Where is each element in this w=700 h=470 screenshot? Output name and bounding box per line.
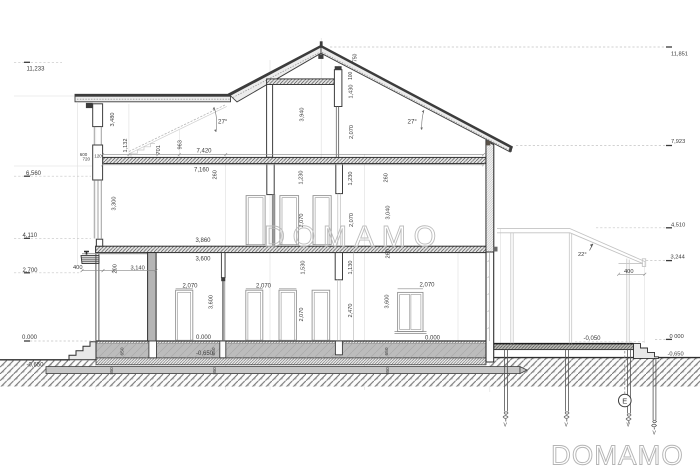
- svg-text:27°: 27°: [218, 119, 228, 126]
- svg-text:750: 750: [353, 53, 359, 62]
- svg-text:2,470: 2,470: [348, 304, 354, 318]
- svg-text:-0,650: -0,650: [668, 352, 684, 358]
- svg-text:200: 200: [113, 264, 119, 273]
- svg-text:3,244: 3,244: [671, 255, 685, 261]
- svg-text:650: 650: [384, 347, 390, 355]
- svg-text:850: 850: [212, 367, 217, 375]
- svg-text:850: 850: [109, 367, 114, 375]
- svg-text:7,420: 7,420: [197, 149, 213, 155]
- svg-text:3,300: 3,300: [112, 197, 118, 211]
- svg-text:3,940: 3,940: [299, 108, 305, 122]
- svg-text:3,860: 3,860: [196, 238, 212, 244]
- svg-text:1,230: 1,230: [348, 172, 354, 186]
- svg-text:701: 701: [156, 145, 162, 154]
- svg-text:11,233: 11,233: [27, 67, 46, 73]
- svg-text:1,530: 1,530: [300, 261, 306, 275]
- svg-text:260: 260: [213, 170, 219, 179]
- svg-text:3,040: 3,040: [386, 206, 392, 220]
- svg-text:650: 650: [120, 347, 126, 355]
- svg-text:4,110: 4,110: [23, 233, 38, 239]
- svg-text:1,230: 1,230: [299, 171, 305, 185]
- svg-text:27°: 27°: [408, 119, 418, 126]
- svg-text:400: 400: [73, 265, 83, 271]
- svg-text:-0,650: -0,650: [27, 363, 45, 369]
- svg-text:11,851: 11,851: [671, 51, 688, 57]
- svg-text:650: 650: [211, 347, 217, 355]
- svg-text:-0,050: -0,050: [584, 336, 602, 342]
- svg-text:1,430: 1,430: [349, 85, 355, 99]
- svg-text:0 000: 0 000: [670, 334, 684, 340]
- svg-text:850: 850: [385, 367, 390, 375]
- svg-text:400: 400: [624, 269, 634, 275]
- svg-text:2,070: 2,070: [420, 283, 436, 289]
- svg-text:720: 720: [83, 156, 91, 161]
- svg-text:3,140: 3,140: [131, 265, 145, 271]
- svg-text:2,700: 2,700: [23, 268, 39, 274]
- svg-text:6,560: 6,560: [26, 171, 42, 177]
- svg-text:0.000: 0.000: [425, 336, 441, 342]
- svg-text:0.000: 0.000: [22, 335, 38, 341]
- svg-text:260: 260: [384, 173, 390, 182]
- svg-text:3,600: 3,600: [196, 256, 212, 262]
- svg-text:4,510: 4,510: [671, 222, 685, 228]
- svg-text:100: 100: [348, 71, 354, 80]
- svg-text:120: 120: [94, 154, 102, 159]
- svg-text:DOMAMO: DOMAMO: [551, 440, 684, 470]
- svg-text:3,480: 3,480: [110, 113, 116, 127]
- svg-text:2,070: 2,070: [349, 125, 355, 139]
- svg-text:E: E: [622, 396, 627, 405]
- svg-text:3,600: 3,600: [209, 295, 215, 309]
- svg-text:7,160: 7,160: [194, 168, 210, 174]
- svg-text:22°: 22°: [578, 252, 587, 258]
- svg-text:7,923: 7,923: [671, 139, 685, 145]
- svg-text:963: 963: [178, 140, 184, 149]
- svg-text:DOMAMO: DOMAMO: [264, 221, 444, 253]
- svg-text:0.000: 0.000: [196, 335, 212, 341]
- svg-text:1,132: 1,132: [123, 139, 129, 153]
- svg-text:1,130: 1,130: [348, 261, 354, 275]
- svg-text:2,070: 2,070: [299, 308, 305, 322]
- svg-text:3,600: 3,600: [385, 295, 391, 309]
